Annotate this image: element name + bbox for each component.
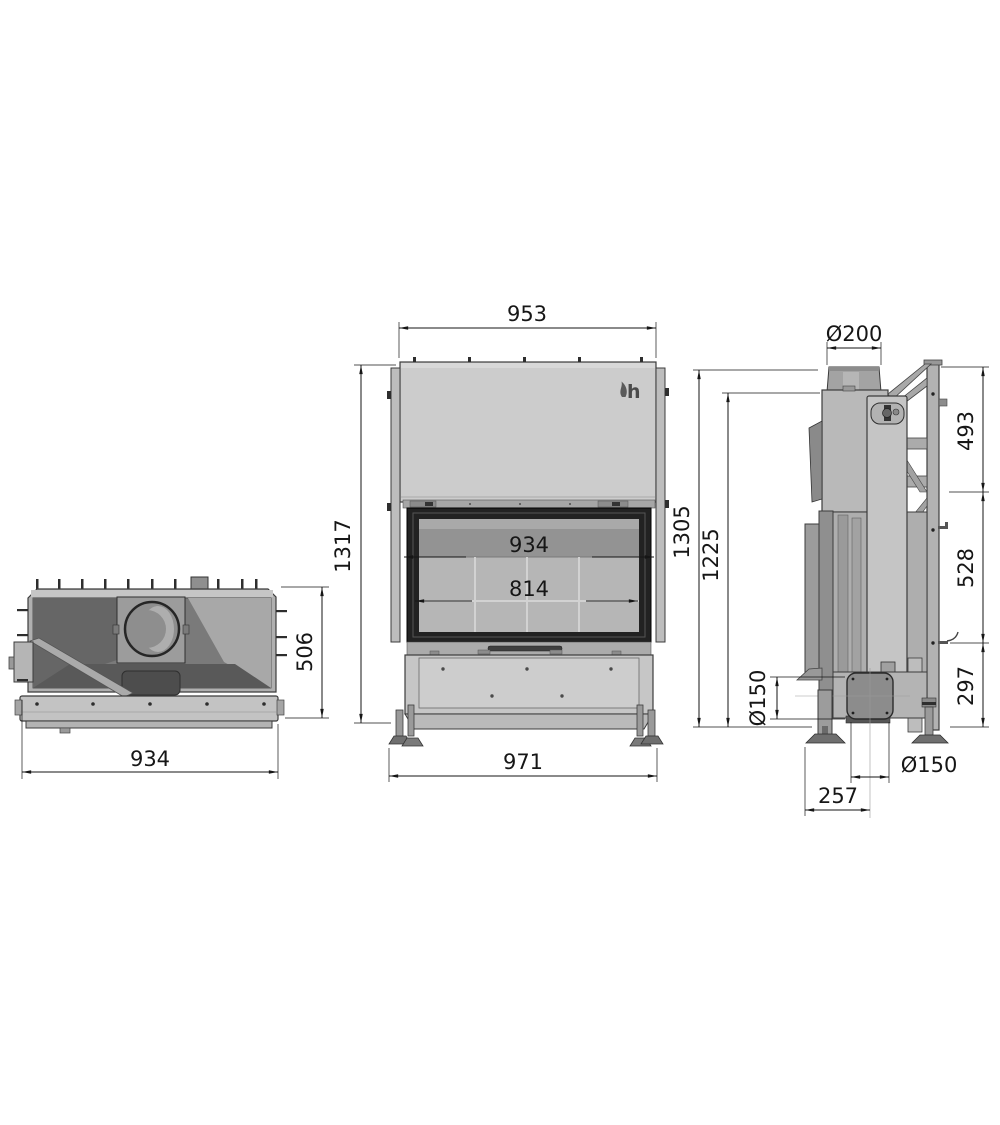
side-rail-top-bolt [939,399,947,406]
technical-drawing-canvas: 506 934 953 1317 [0,0,1000,1125]
top-view-top-band [31,590,273,597]
front-glass-top-sliver [419,519,639,529]
dim-label-1225: 1225 [699,528,723,581]
top-view-skirt [26,721,272,728]
dim-label-o200: Ø200 [826,322,883,346]
dim-top-view-depth: 506 [281,587,329,718]
dim-side-mid-section: 528 [950,492,989,643]
dim-label-1317: 1317 [331,519,355,572]
dim-front-base-width: 971 [389,748,657,782]
dim-label-971: 971 [503,750,543,774]
side-top-step [843,386,855,391]
dim-label-297: 297 [954,666,978,706]
dim-label-o150-bottom: Ø150 [901,753,958,777]
side-left-panel-2 [805,524,819,676]
dim-front-overall-height: 1317 [331,365,396,723]
dim-side-bottom-section: 297 [950,643,989,727]
front-base-panel [419,658,639,708]
top-view-studs [36,579,258,590]
dim-label-953: 953 [507,302,547,326]
side-counterweight-column [867,396,907,675]
top-view-endcap-left [15,700,22,715]
dim-label-493: 493 [954,411,978,451]
front-base-skirt [405,714,653,729]
dim-label-o150-side: Ø150 [746,670,770,727]
front-hood-studs [413,357,643,362]
side-lower-slat-1 [838,515,848,673]
top-view-collar-tab-right [183,625,189,634]
side-lower-slat-2 [852,518,861,673]
dim-side-top-section: 493 [941,367,989,492]
front-right-rail [656,368,665,642]
top-view-skirt-nub [60,728,70,733]
top-view: 506 934 [9,577,329,779]
side-view: Ø200 [670,322,989,818]
top-view-base-slab [20,696,278,721]
dim-label-506: 506 [293,632,317,672]
top-view-endcap-right [277,700,284,715]
dim-label-528: 528 [954,548,978,588]
dim-side-overall-height: 1305 [670,370,818,727]
side-deflector-plate [809,421,822,502]
top-view-flue-inner [128,610,166,648]
top-view-left-box-nub [9,657,14,669]
drawing-page: 506 934 953 1317 [0,0,1000,1125]
side-left-panel-1 [819,511,833,691]
dim-label-1305: 1305 [670,505,694,558]
dim-label-814: 814 [509,577,549,601]
top-view-collar-tab-left [113,625,119,634]
dim-label-257: 257 [818,784,858,808]
front-view: 953 1317 h [331,302,669,782]
top-view-chimney-stub [191,577,208,590]
top-view-left-box [14,642,33,682]
dim-label-934-door: 934 [509,533,549,557]
front-left-rail [391,368,400,642]
side-flue-rim [829,367,879,371]
brand-logo-letter: h [627,381,641,403]
side-angled-plate [797,668,822,680]
dim-front-top-width: 953 [399,302,656,358]
dim-bottom-intake-diameter: Ø150 [851,722,957,783]
dim-label-934-top: 934 [130,747,170,771]
dim-side-flue-diameter: Ø200 [826,322,883,365]
dim-side-front-depth: 257 [805,747,870,816]
side-rear-rail [927,362,939,730]
front-hood-top-band [401,363,655,368]
side-hook-lower [938,632,958,644]
front-hood-panel [400,362,656,502]
